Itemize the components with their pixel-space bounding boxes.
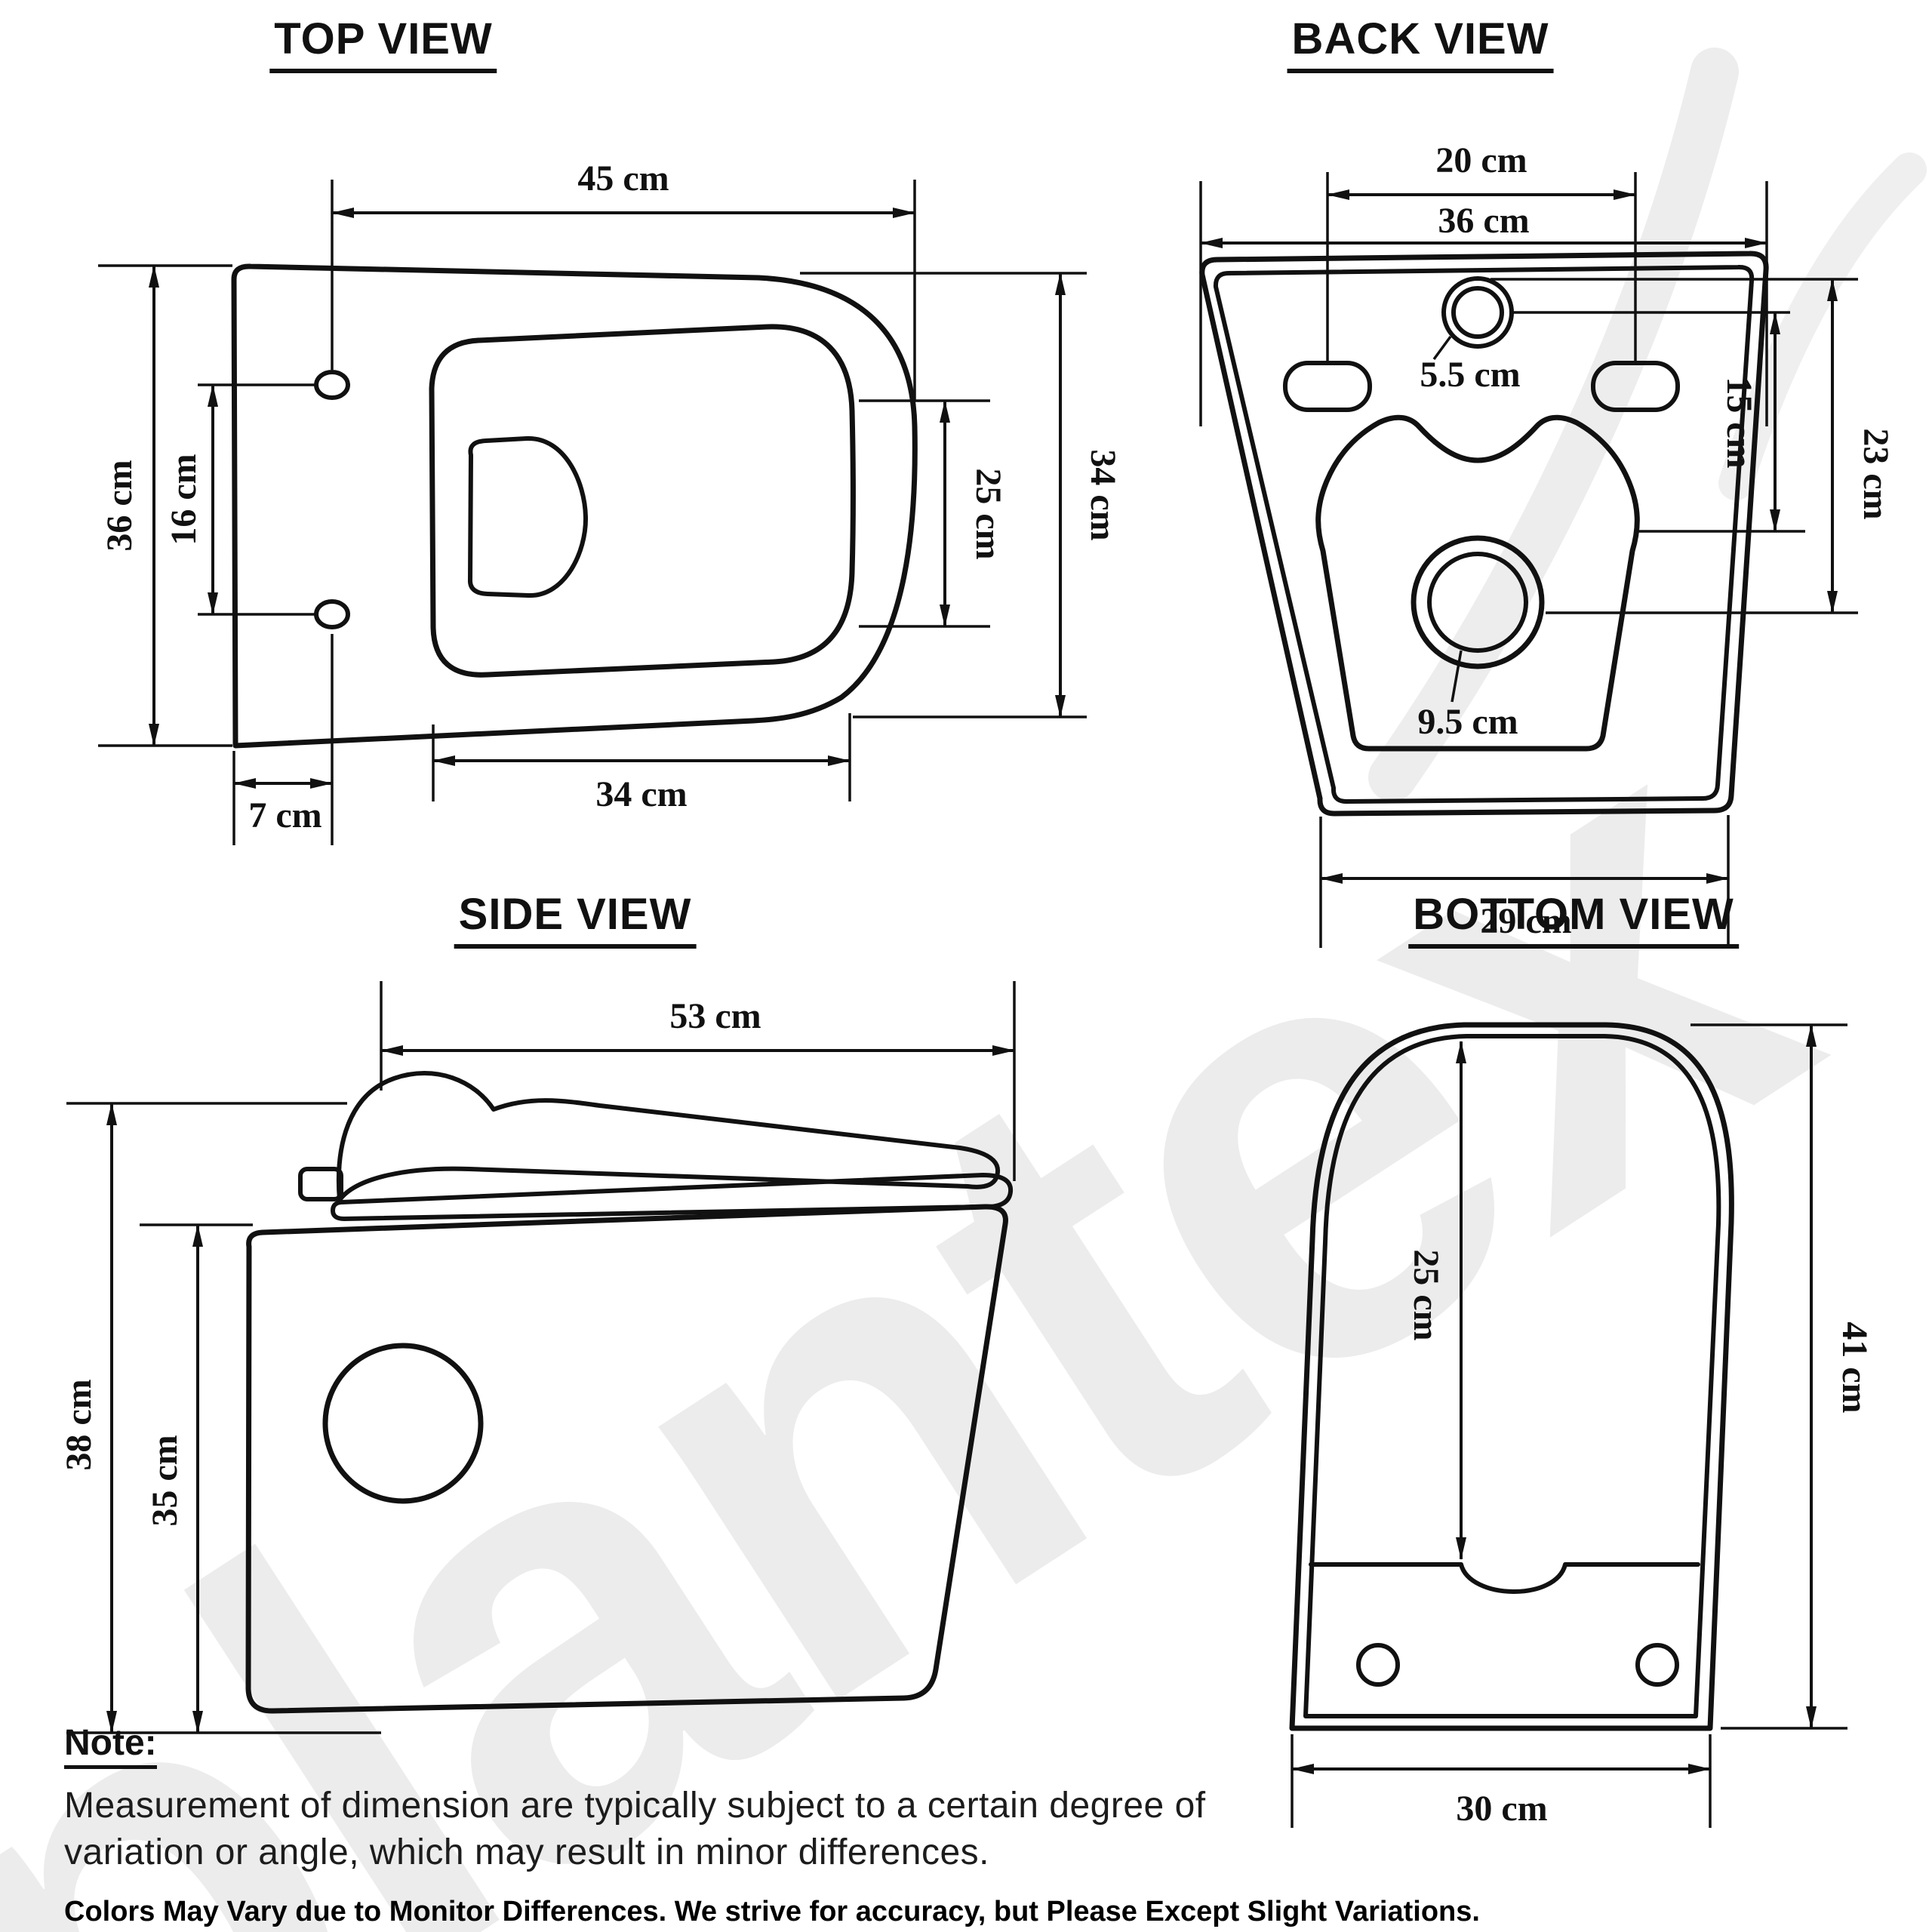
back-outlet-hole-inner [1429,554,1526,651]
back-slot-left [1285,363,1370,410]
side-inlet-circle [325,1346,481,1501]
note-line-2: variation or angle, which may result in … [64,1829,1890,1876]
dim-label-15: 15 cm [1719,377,1759,468]
note-line-1: Measurement of dimension are typically s… [64,1783,1890,1829]
dim-label-34-right: 34 cm [1083,449,1123,540]
bottom-view-title: BOTTOM VIEW [1408,889,1739,949]
bottom-view-title-text: BOTTOM VIEW [1408,889,1739,949]
bottom-mount-hole-right [1638,1645,1677,1684]
note-section: Note: Measurement of dimension are typic… [64,1722,1890,1928]
top-view-title-text: TOP VIEW [269,14,497,73]
back-outlet-hole-outer [1414,538,1542,666]
top-mount-hole-lower [316,601,348,627]
dimension-diagram: plantex TOP VIEW BACK VIEW SIDE VIEW BOT… [0,0,1932,1932]
dim-label-95: 9.5 cm [1417,702,1518,742]
dim-label-23: 23 cm [1856,428,1896,519]
bottom-body-outline [1292,1025,1731,1728]
dim-label-45: 45 cm [577,158,669,198]
dim-label-53: 53 cm [669,996,761,1036]
back-inlet-hole-inner [1454,288,1502,337]
side-seat-outline [333,1175,1011,1219]
dim-label-bottom-25: 25 cm [1406,1249,1446,1340]
back-view-title-text: BACK VIEW [1287,14,1554,73]
top-view-title: TOP VIEW [269,14,497,73]
dim-label-38: 38 cm [59,1379,99,1470]
back-view-title: BACK VIEW [1287,14,1554,73]
dim-label-36: 36 cm [100,460,140,551]
side-hinge-tab [300,1169,341,1199]
dim-label-34-bottom: 34 cm [595,774,687,814]
back-view-drawing: 20 cm 36 cm 5.5 cm 15 cm 23 cm 9.5 cm [1201,140,1896,948]
side-view-title: SIDE VIEW [454,889,697,949]
top-seat-outline [432,327,854,675]
top-view-drawing: 45 cm 36 cm 16 cm 7 cm 34 cm 2 [98,158,1123,845]
side-view-title-text: SIDE VIEW [454,889,697,949]
dim-label-55: 5.5 cm [1420,355,1520,395]
dim-label-35: 35 cm [145,1435,185,1526]
dim-label-20: 20 cm [1435,140,1527,180]
bottom-view-drawing: 25 cm 41 cm 30 cm [1292,1025,1875,1829]
side-view-drawing: 53 cm 38 cm 35 cm [59,981,1014,1733]
dim-label-16: 16 cm [164,454,204,545]
bottom-body-inner-outline [1306,1036,1718,1716]
dim-label-25: 25 cm [968,468,1008,559]
dim-label-back-36: 36 cm [1438,201,1529,241]
leader-line-95 [1452,651,1461,702]
bottom-notch-line [1311,1564,1698,1592]
note-heading: Note: [64,1722,157,1769]
top-flush-opening [470,438,586,595]
dim-label-41: 41 cm [1835,1321,1875,1413]
drawing-layer: 45 cm 36 cm 16 cm 7 cm 34 cm 2 [0,0,1932,1932]
top-mount-hole-upper [316,372,348,398]
dim-label-7: 7 cm [248,795,321,835]
note-disclaimer: Colors May Vary due to Monitor Differenc… [64,1896,1890,1928]
bottom-mount-hole-left [1358,1645,1398,1684]
side-body-outline [248,1207,1005,1711]
back-slot-right [1593,363,1678,410]
side-lid-outline [339,1073,998,1200]
back-shield-outline [1318,417,1638,749]
